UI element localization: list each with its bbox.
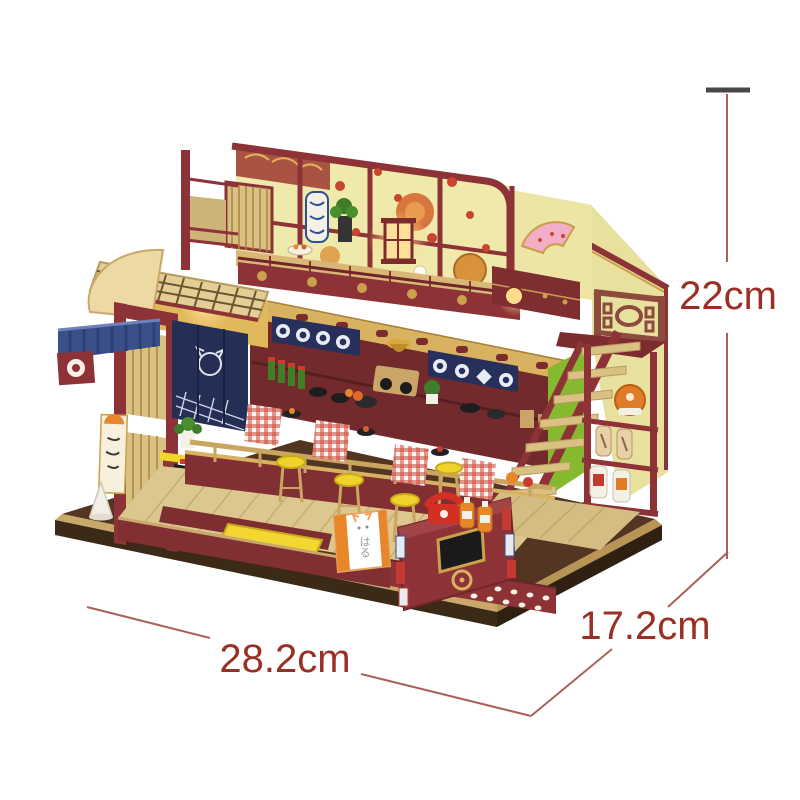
depth-label: 17.2cm <box>579 604 710 648</box>
height-label: 22cm <box>679 274 777 318</box>
daruma-clock <box>615 385 645 415</box>
square-lantern-icon <box>381 218 416 264</box>
product-image: はる <box>0 0 800 800</box>
front-box-sign-text: はる <box>358 536 370 558</box>
round-lamp-icon <box>505 287 523 305</box>
porcelain-vase <box>306 192 328 242</box>
shop-sign <box>57 351 95 385</box>
banner-sign <box>99 414 128 494</box>
front-box-sign: はる <box>334 510 390 572</box>
width-label: 28.2cm <box>219 637 350 681</box>
dimension-width: 28.2cm <box>87 607 531 716</box>
product-photo-canvas: はる <box>0 0 800 800</box>
cat-noren-curtain <box>172 320 248 432</box>
dimension-height: 22cm <box>679 90 777 559</box>
